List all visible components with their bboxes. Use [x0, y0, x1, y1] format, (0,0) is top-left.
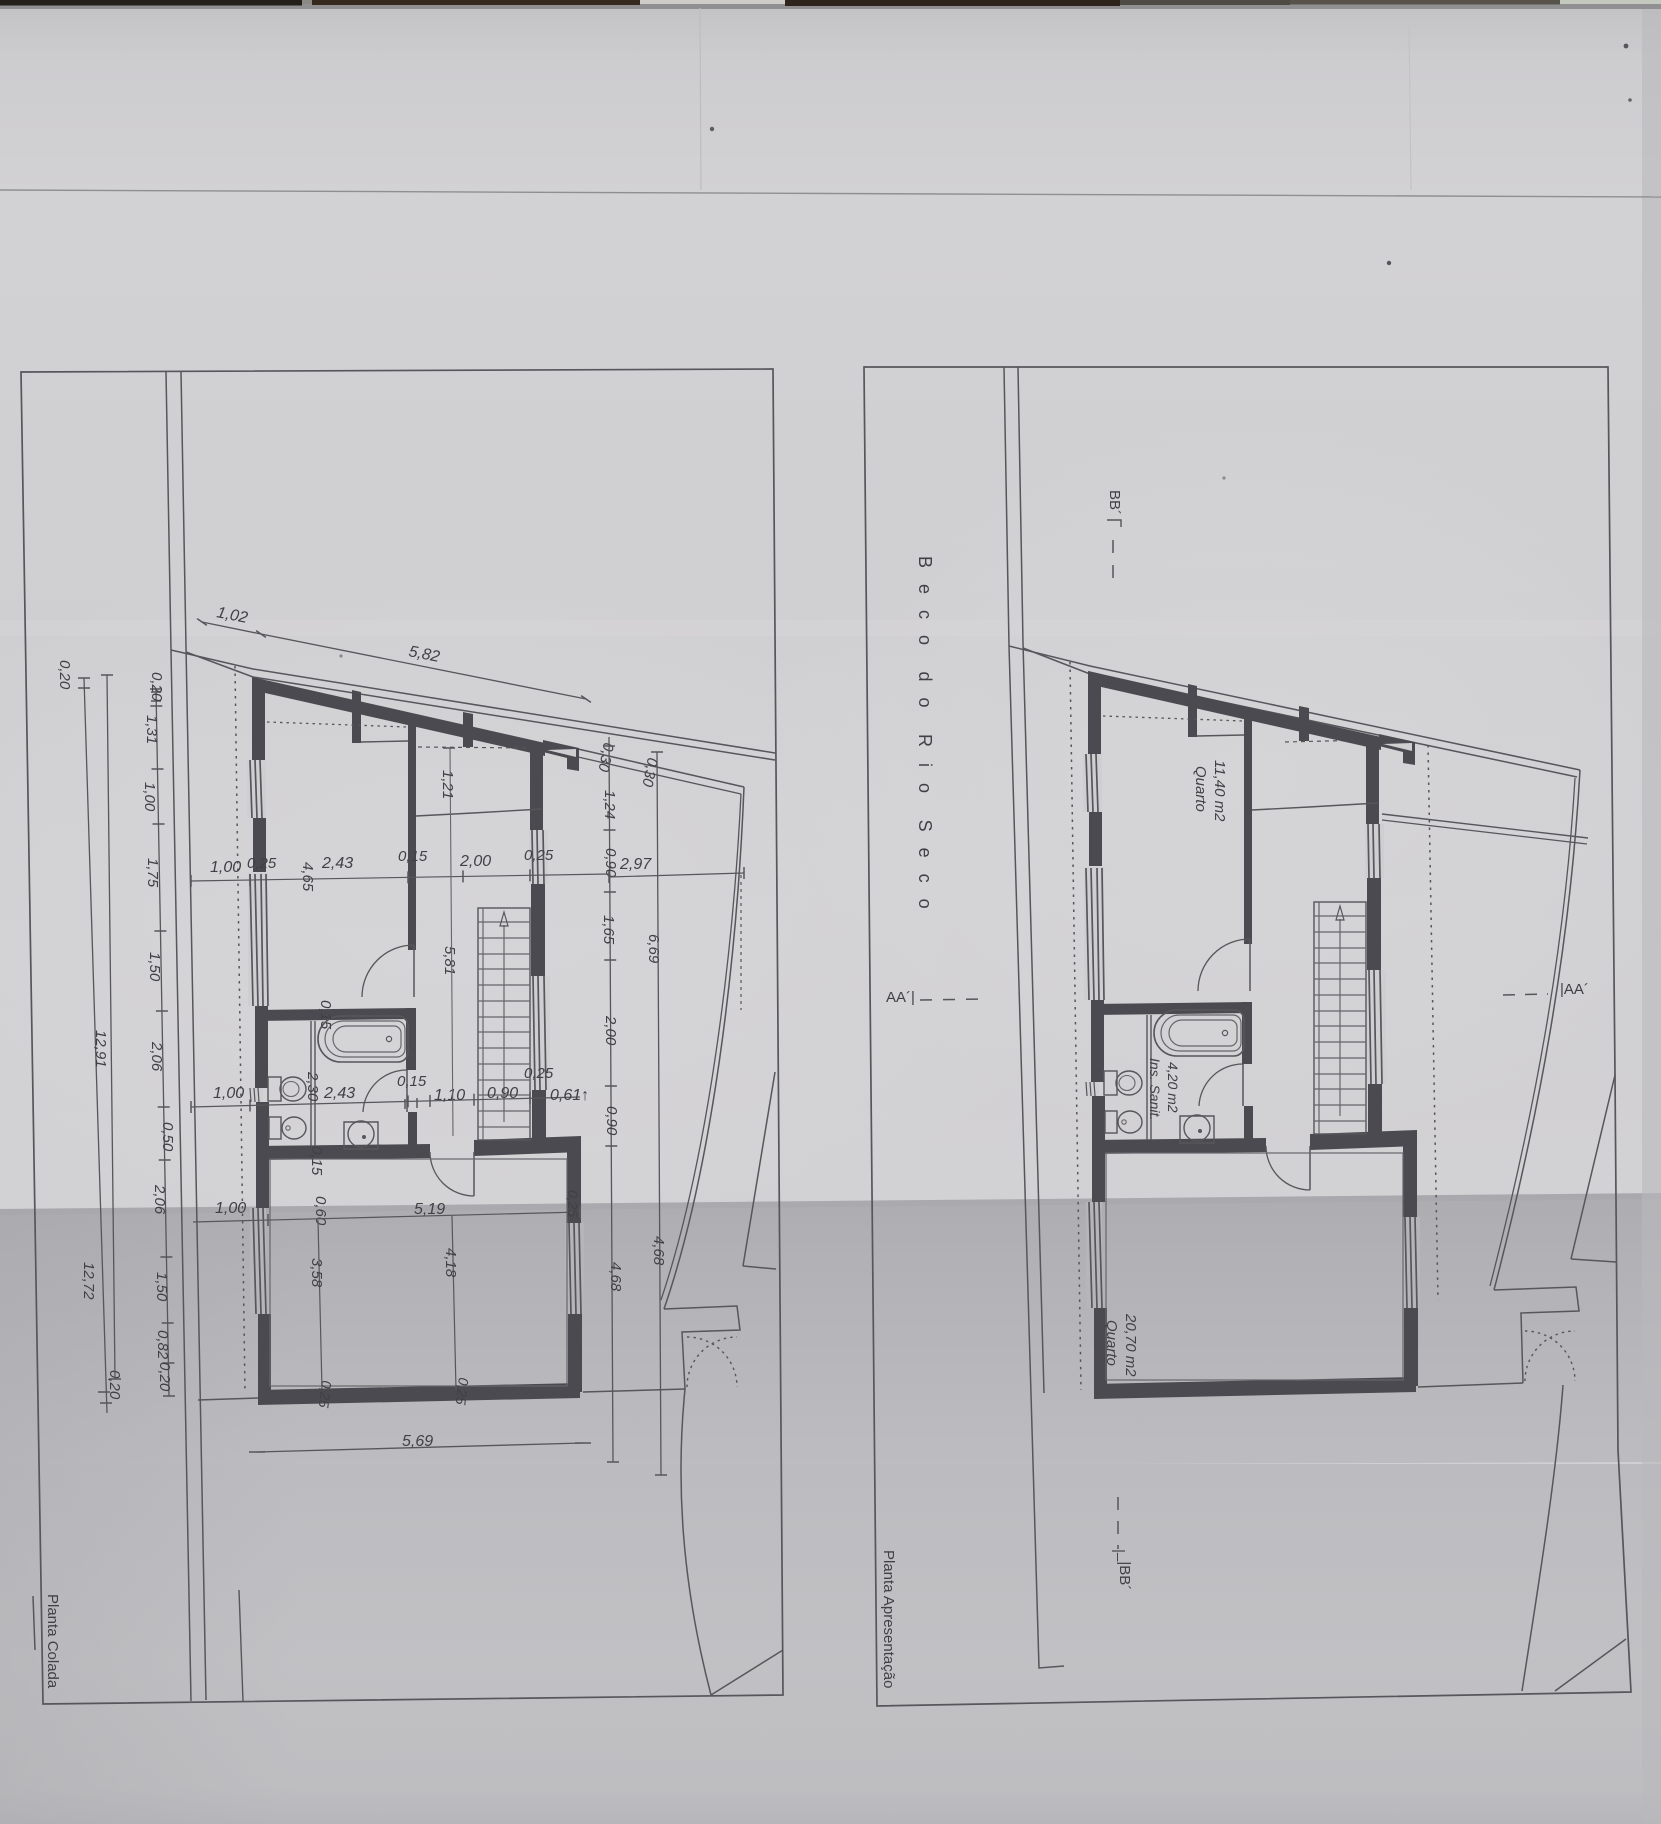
svg-text:4,65: 4,65: [299, 862, 316, 892]
svg-text:2,00: 2,00: [602, 1015, 619, 1046]
svg-text:5,19: 5,19: [414, 1201, 445, 1218]
svg-text:0,15: 0,15: [398, 848, 428, 865]
svg-text:3,58: 3,58: [308, 1258, 325, 1288]
svg-text:4,68: 4,68: [650, 1236, 667, 1266]
svg-text:Ins. Sanit.: Ins. Sanit.: [1147, 1058, 1163, 1120]
svg-text:Quarto: Quarto: [1103, 1320, 1120, 1366]
svg-text:Quarto: Quarto: [1192, 766, 1209, 812]
svg-text:0,20: 0,20: [156, 1362, 173, 1392]
svg-text:AA´|: AA´|: [886, 989, 915, 1006]
svg-text:0,25: 0,25: [524, 1065, 554, 1082]
svg-text:0,90: 0,90: [487, 1085, 518, 1102]
svg-text:4,18: 4,18: [442, 1248, 459, 1278]
svg-text:0,15: 0,15: [308, 1146, 325, 1176]
svg-text:0,25: 0,25: [316, 1380, 335, 1409]
svg-text:2,06: 2,06: [151, 1184, 168, 1215]
svg-text:_|BB´: _|BB´: [1116, 1552, 1133, 1590]
svg-text:2,43: 2,43: [321, 855, 353, 872]
svg-text:0,90: 0,90: [602, 848, 619, 878]
svg-text:2,43: 2,43: [323, 1085, 355, 1102]
svg-text:0,20: 0,20: [56, 660, 73, 690]
svg-text:1,50: 1,50: [146, 952, 163, 982]
svg-text:0,15: 0,15: [317, 1000, 334, 1030]
svg-text:1,21: 1,21: [439, 770, 456, 799]
svg-text:1,75: 1,75: [144, 858, 161, 888]
svg-text:1,50: 1,50: [153, 1272, 170, 1302]
svg-text:1,00: 1,00: [213, 1085, 244, 1102]
svg-text:4,68: 4,68: [607, 1262, 624, 1292]
svg-text:2,30: 2,30: [304, 1071, 321, 1102]
svg-text:1,00: 1,00: [141, 782, 158, 812]
svg-text:1,00: 1,00: [215, 1200, 246, 1217]
svg-text:12,72: 12,72: [80, 1262, 97, 1300]
svg-text:1,24: 1,24: [601, 790, 618, 819]
svg-text:1,10: 1,10: [434, 1087, 465, 1104]
svg-text:5,69: 5,69: [402, 1433, 433, 1450]
svg-text:2,00: 2,00: [459, 853, 491, 870]
svg-text:1,31: 1,31: [143, 715, 160, 744]
svg-text:|AA´: |AA´: [1560, 981, 1589, 998]
svg-text:11,40 m2: 11,40 m2: [1211, 760, 1228, 822]
svg-text:B e c o d o R i o S e c o: B e c o d o R i o S e c o: [915, 556, 935, 914]
svg-text:0,60: 0,60: [312, 1196, 329, 1226]
svg-text:4,20 m2: 4,20 m2: [1165, 1062, 1181, 1113]
svg-text:BB´: BB´: [1106, 490, 1123, 515]
svg-text:0,15: 0,15: [397, 1073, 427, 1090]
svg-text:0,25: 0,25: [247, 855, 277, 872]
svg-text:0,90: 0,90: [603, 1106, 620, 1136]
svg-text:0,20: 0,20: [148, 672, 165, 702]
svg-text:0,61↑: 0,61↑: [550, 1087, 589, 1104]
svg-text:0,25: 0,25: [565, 1190, 581, 1217]
svg-text:0,25: 0,25: [524, 847, 554, 864]
svg-text:20,70 m2: 20,70 m2: [1122, 1313, 1139, 1377]
svg-text:6,69: 6,69: [645, 934, 662, 964]
svg-text:2,06: 2,06: [148, 1041, 165, 1072]
svg-text:Planta Colada: Planta Colada: [44, 1594, 61, 1689]
svg-text:5,81: 5,81: [441, 946, 458, 975]
svg-text:2,97: 2,97: [619, 856, 652, 873]
svg-text:1,00: 1,00: [210, 859, 241, 876]
svg-text:0,82: 0,82: [154, 1330, 171, 1360]
svg-text:1,65: 1,65: [600, 915, 617, 945]
svg-text:0,25: 0,25: [453, 1377, 472, 1406]
svg-text:12,91: 12,91: [92, 1030, 109, 1068]
svg-text:Planta Apresentação: Planta Apresentação: [880, 1550, 897, 1688]
svg-text:0,50: 0,50: [159, 1122, 176, 1152]
